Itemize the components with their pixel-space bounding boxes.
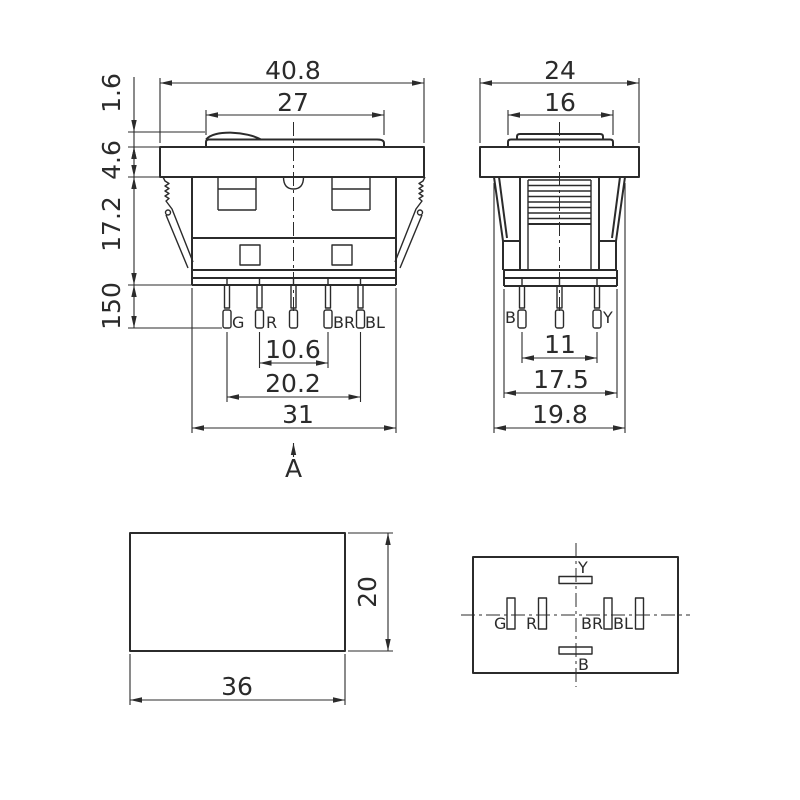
terminal-g: [507, 598, 515, 629]
mounting-clip-right: [395, 177, 425, 268]
dim-text-150: 150: [97, 282, 126, 330]
terminal-label-br: BR: [581, 614, 603, 633]
side-button-plate: [508, 140, 613, 148]
dim-text-20-2: 20.2: [265, 369, 321, 398]
dim-text-10-6: 10.6: [265, 335, 321, 364]
dim-text-17-2: 17.2: [97, 196, 126, 252]
side-base: [504, 270, 617, 286]
bottom-view: Y G R BR BL B: [461, 543, 690, 687]
front-button-plate: [206, 140, 384, 148]
section-label-a: A: [285, 454, 302, 483]
pin-label-g: G: [232, 313, 244, 332]
terminal-bl: [636, 598, 644, 629]
side-body-left: [494, 177, 520, 270]
terminal-label-b: B: [578, 655, 589, 674]
front-latch-window-left: [218, 177, 256, 210]
dim-text-16: 16: [544, 88, 576, 117]
terminal-label-r: R: [526, 614, 537, 633]
pin-label-r: R: [266, 313, 277, 332]
dim-text-1-6: 1.6: [97, 73, 126, 113]
dim-text-36: 36: [221, 672, 253, 701]
front-square-window-left: [240, 245, 260, 265]
side-body-right: [599, 177, 625, 270]
pin-label-br: BR: [333, 313, 355, 332]
terminal-r: [539, 598, 547, 629]
front-square-window-right: [332, 245, 352, 265]
cutout-rectangle: [130, 533, 345, 651]
dim-text-27: 27: [277, 88, 309, 117]
dim-cutout-width: 36: [130, 654, 345, 705]
drawing-page: G R BR BL 40.8 27 1.6 4.6 17.2 150: [0, 0, 800, 800]
pin-label-y: Y: [602, 308, 613, 327]
pin-label-bl: BL: [365, 313, 385, 332]
pin-label-b: B: [505, 308, 516, 327]
dim-text-24: 24: [544, 56, 576, 85]
dim-text-17-5: 17.5: [533, 365, 589, 394]
front-bezel: [160, 147, 424, 177]
front-view-outline: [160, 122, 425, 328]
front-button-hump: [206, 133, 261, 140]
switch-dimension-drawing: G R BR BL 40.8 27 1.6 4.6 17.2 150: [0, 0, 800, 800]
cutout-view: 36 20: [130, 533, 393, 705]
section-marker-a: A: [285, 443, 302, 483]
dim-cutout-height: 20: [348, 533, 393, 651]
dim-text-31: 31: [282, 400, 314, 429]
dim-side-button-width: 16: [508, 88, 613, 135]
dim-text-11: 11: [544, 330, 576, 359]
dim-front-pin-pitch-inner: 10.6: [260, 332, 329, 368]
side-view: B Y 24 16 11 17.5 19.8: [480, 56, 639, 433]
front-latch-window-right: [332, 177, 370, 210]
dim-text-20: 20: [353, 576, 382, 608]
mounting-clip-left: [163, 177, 193, 268]
terminal-label-y: Y: [577, 558, 588, 577]
front-view: G R BR BL 40.8 27 1.6 4.6 17.2 150: [97, 56, 425, 483]
terminal-br: [604, 598, 612, 629]
dim-front-button-width: 27: [206, 88, 384, 135]
dim-text-40-8: 40.8: [265, 56, 321, 85]
terminal-label-g: G: [494, 614, 506, 633]
terminal-label-bl: BL: [613, 614, 633, 633]
dim-text-19-8: 19.8: [532, 400, 588, 429]
dim-side-pin-pitch: 11: [522, 330, 597, 363]
dim-text-4-6: 4.6: [97, 140, 126, 180]
